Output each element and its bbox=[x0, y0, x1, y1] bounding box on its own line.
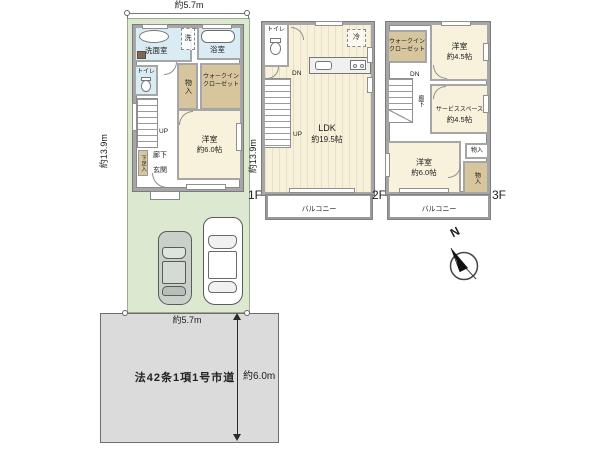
floor-label-2f: 2F bbox=[372, 189, 386, 203]
window bbox=[202, 24, 232, 29]
room-storage-b-3f: 物入 bbox=[463, 161, 487, 192]
floor-label-1f: 1F bbox=[248, 189, 262, 203]
door-arc bbox=[152, 173, 167, 188]
window bbox=[367, 47, 373, 63]
kitchen-sink-icon bbox=[315, 61, 332, 70]
stairs-2f bbox=[265, 78, 291, 148]
wic3-label-line1: ウォークイン bbox=[389, 39, 425, 46]
stairs-dn-label-2f: DN bbox=[292, 70, 301, 77]
window bbox=[289, 188, 355, 193]
toilet-tank-icon bbox=[141, 77, 151, 81]
room-walk-in-closet-3f: ウォークイン クローゼット bbox=[389, 30, 427, 63]
room-bathroom: 浴室 bbox=[197, 28, 240, 60]
car-rear-window bbox=[208, 281, 237, 293]
window bbox=[236, 123, 242, 151]
dimension-line-top bbox=[128, 13, 249, 14]
bedroom1-3f-size: 約4.5帖 bbox=[447, 53, 472, 62]
window bbox=[315, 21, 343, 26]
dimension-end-circle bbox=[244, 10, 250, 16]
kitchen-stove-icon bbox=[350, 60, 366, 70]
bathroom-label: 浴室 bbox=[210, 46, 225, 55]
car-roof bbox=[162, 261, 186, 284]
toilet-icon bbox=[270, 42, 281, 55]
window bbox=[399, 188, 449, 193]
floor-label-3f: 3F bbox=[492, 189, 506, 203]
wic-label-line1: ウォークイン bbox=[202, 74, 240, 81]
balcony-3f: バルコニー bbox=[388, 195, 490, 219]
road-frontage-label: 約5.7m bbox=[154, 315, 220, 325]
compass: N bbox=[442, 226, 488, 286]
bedroom-1f-name: 洋室 bbox=[202, 135, 218, 144]
balcony-2f-label: バルコニー bbox=[302, 206, 337, 217]
car-sedan bbox=[203, 217, 243, 305]
window bbox=[441, 21, 471, 26]
wic3-label-line2: クローゼット bbox=[389, 47, 425, 54]
bedroom1-3f-name: 洋室 bbox=[452, 42, 468, 51]
ldk-size: 約19.5帖 bbox=[297, 135, 357, 144]
kitchen-counter bbox=[309, 57, 371, 74]
arrow-up-icon bbox=[233, 313, 241, 320]
stairs-landing-3f bbox=[389, 109, 413, 123]
door-arc bbox=[164, 62, 177, 75]
room-storage-1f: 物入 bbox=[177, 63, 198, 110]
fridge-label: 冷 bbox=[353, 34, 360, 42]
bathtub-icon bbox=[201, 30, 235, 43]
toilet-label: トイレ bbox=[137, 69, 155, 76]
storage-a-label: 物入 bbox=[471, 148, 483, 155]
room-toilet-2f: トイレ bbox=[265, 25, 289, 67]
balcony-3f-label: バルコニー bbox=[422, 206, 457, 217]
floor-plan-sheet: 約5.7m 約13.9m 約13.9m 洗面室 洗 浴室 トイレ 物入 ウォーク bbox=[0, 0, 600, 450]
window bbox=[142, 24, 168, 29]
road-width-label: 約6.0m bbox=[243, 371, 275, 383]
balcony-2f: バルコニー bbox=[266, 195, 372, 219]
room-toilet-1f: トイレ bbox=[136, 65, 158, 96]
floor-plan-2f: トイレ 冷 DN UP LDK 約19.5帖 bbox=[262, 22, 374, 195]
dimension-end-circle bbox=[124, 10, 130, 16]
burner-icon bbox=[353, 64, 357, 68]
storage-b-label: 物入 bbox=[473, 172, 480, 184]
road-name-label: 法42条1項1号市道 bbox=[105, 372, 265, 385]
washroom-label: 洗面室 bbox=[145, 47, 168, 56]
stairs-up-label-1f: UP bbox=[159, 128, 168, 135]
service-space-size: 約4.5帖 bbox=[432, 116, 487, 125]
car-rear-window bbox=[162, 286, 186, 296]
car-roof bbox=[208, 251, 237, 279]
stairs-1f bbox=[137, 98, 158, 148]
shoe-closet: 下足入 bbox=[138, 150, 148, 176]
compass-needle-icon bbox=[444, 239, 484, 285]
lot-width-label: 約5.7m bbox=[149, 0, 229, 10]
arrow-down-icon bbox=[233, 434, 241, 441]
laundry-label: 洗 bbox=[185, 35, 192, 43]
bedroom2-3f-size: 約6.0帖 bbox=[411, 169, 436, 178]
floor-plan-3f: ウォークイン クローゼット 洋室 約4.5帖 DN 廊下 サービススペース 約4… bbox=[386, 22, 490, 195]
shoe-closet-label: 下足入 bbox=[140, 155, 146, 172]
room-storage-a-3f: 物入 bbox=[465, 143, 487, 159]
burner-icon bbox=[360, 64, 364, 68]
ldk-name: LDK bbox=[297, 123, 357, 133]
laundry-box: 洗 bbox=[181, 28, 195, 50]
hallway-label-1f: 廊下 bbox=[153, 152, 167, 160]
bedroom-1f-size: 約6.0帖 bbox=[197, 146, 222, 155]
service-space-name: サービススペース bbox=[432, 107, 487, 114]
toilet-icon bbox=[141, 80, 151, 92]
road-width-arrow bbox=[237, 319, 238, 436]
dimension-end-circle bbox=[244, 310, 250, 316]
window bbox=[132, 103, 137, 131]
hallway-label-3f: 廊下 bbox=[416, 95, 423, 107]
window bbox=[367, 77, 373, 93]
window bbox=[483, 43, 489, 61]
car-compact bbox=[158, 231, 192, 305]
bedroom2-3f-name: 洋室 bbox=[416, 158, 432, 167]
storage-label: 物入 bbox=[183, 79, 191, 95]
washbasin-icon bbox=[139, 30, 169, 43]
dimension-end-circle bbox=[122, 310, 128, 316]
floor-plan-1f: 洗面室 洗 浴室 トイレ 物入 ウォークイン クローゼット UP 下足入 bbox=[133, 25, 243, 191]
car-windshield bbox=[208, 235, 237, 249]
window bbox=[483, 95, 489, 113]
window bbox=[186, 184, 226, 190]
room-walk-in-closet-1f: ウォークイン クローゼット bbox=[200, 63, 240, 110]
lot-depth-label-left: 約13.9m bbox=[99, 119, 109, 183]
fridge-space: 冷 bbox=[347, 29, 366, 47]
window bbox=[385, 153, 390, 177]
car-windshield bbox=[162, 247, 186, 259]
lot-depth-label-right: 約13.9m bbox=[248, 124, 258, 188]
toilet-label-2f: トイレ bbox=[267, 27, 285, 34]
toilet-tank-icon bbox=[270, 38, 281, 43]
entrance-porch bbox=[150, 191, 180, 200]
wic-label-line2: クローゼット bbox=[202, 82, 240, 89]
